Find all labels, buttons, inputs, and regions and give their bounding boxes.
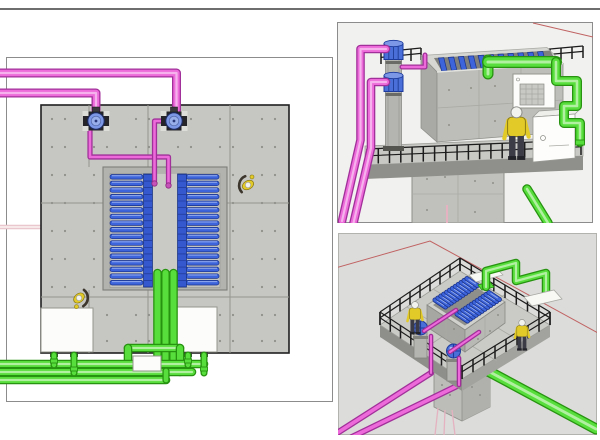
pump-cylinder bbox=[413, 321, 428, 358]
slide-top-rule bbox=[0, 8, 600, 10]
bank-endcaps-right bbox=[178, 174, 187, 287]
bank-endcaps-left bbox=[144, 174, 153, 287]
chemical-cylinders bbox=[383, 40, 404, 151]
cabinet-left bbox=[41, 308, 93, 357]
panel-iso-view-lower bbox=[338, 233, 597, 435]
pipe-flange bbox=[152, 181, 157, 186]
control-cabinet-box bbox=[533, 108, 581, 162]
panel-iso-view-upper bbox=[337, 22, 593, 223]
control-cabinet-mesh bbox=[513, 74, 555, 108]
valve-box bbox=[133, 356, 161, 371]
panel-plan-view bbox=[0, 57, 333, 402]
pipe-flange bbox=[166, 183, 171, 188]
